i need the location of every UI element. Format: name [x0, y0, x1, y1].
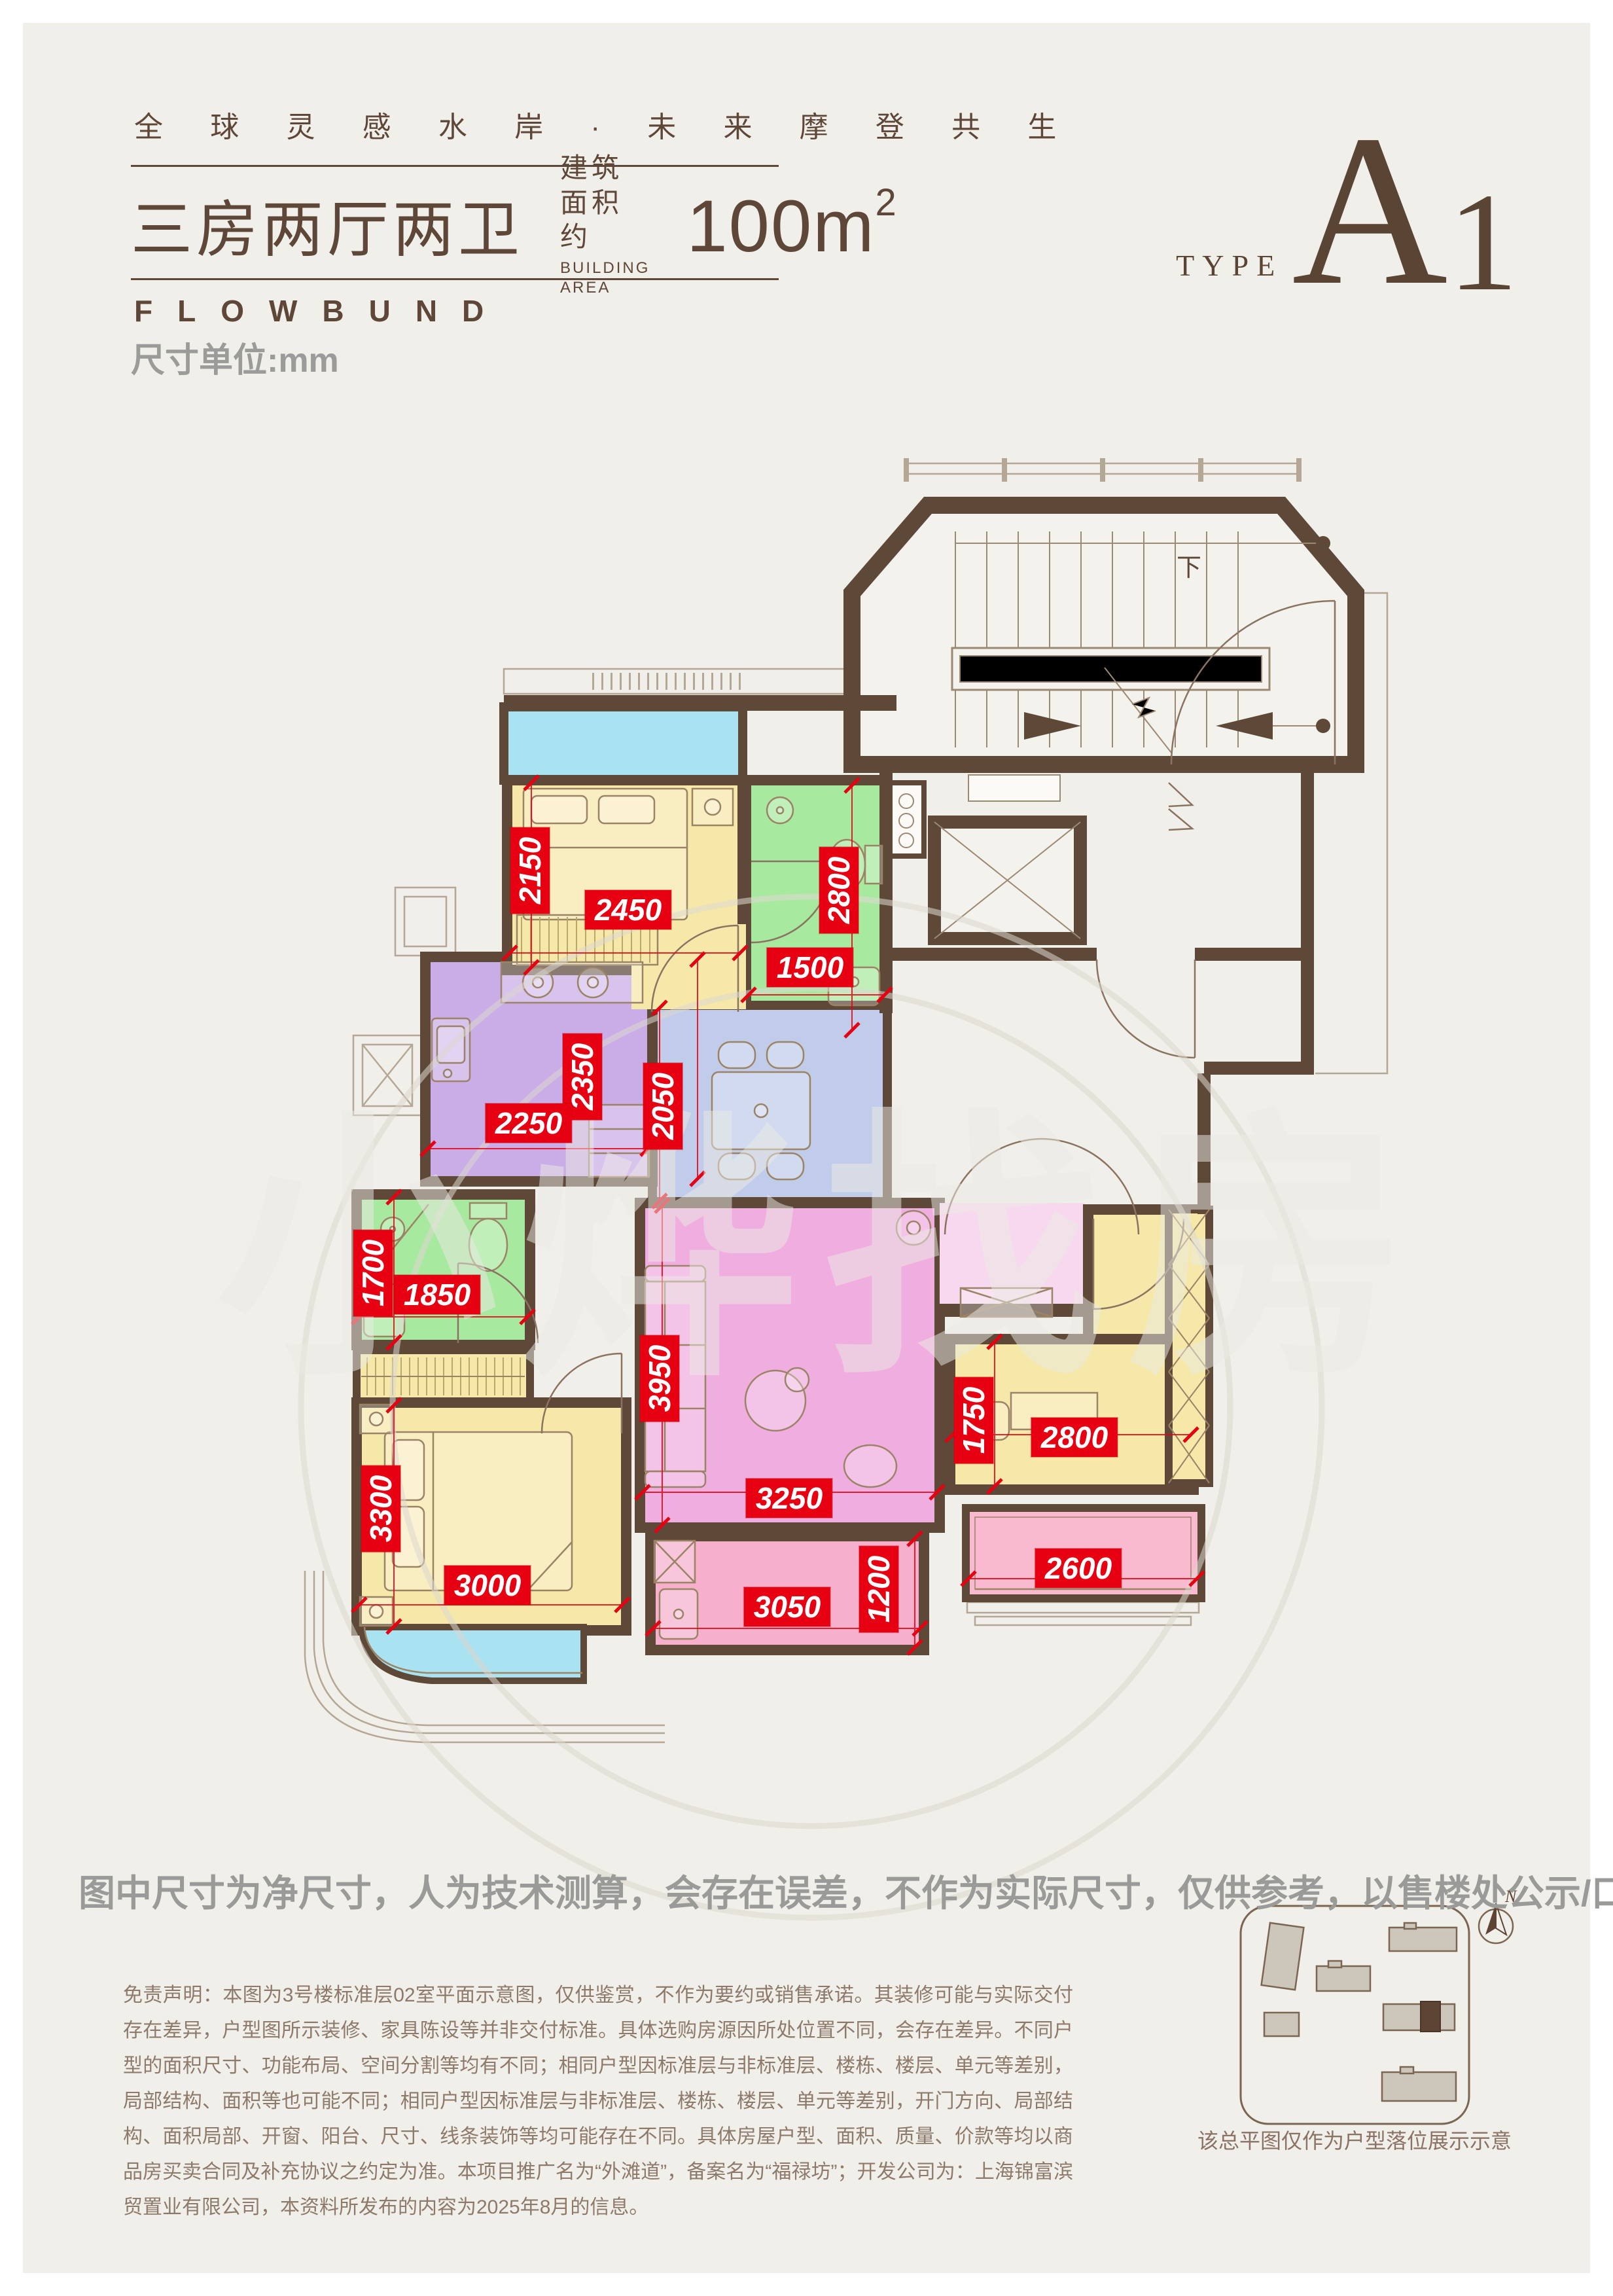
type-value-1: 1 [1448, 185, 1519, 300]
elevator [934, 775, 1080, 939]
dim-chip: 2450 [585, 890, 671, 929]
area-superscript: 2 [876, 181, 898, 224]
slogan: 全 球 灵 感 水 岸 · 未 来 摩 登 共 生 [134, 103, 1076, 145]
site-plan: N 该总平图仅作为户型落位展示示意 [1197, 1887, 1517, 2153]
dim-chip: 3950 [640, 1335, 679, 1422]
dim-chip: 3050 [744, 1587, 830, 1626]
dim-chip: 2150 [510, 827, 550, 914]
disclaimer-text: 免责声明：本图为3号楼标准层02室平面示意图，仅供鉴赏，不作为要约或销售承诺。其… [123, 1978, 1073, 2225]
dim-chip: 3300 [361, 1465, 400, 1552]
type-badge: TYPEA1 [1217, 84, 1518, 300]
divider-bottom [131, 278, 779, 280]
dim-chip: 1850 [394, 1275, 480, 1314]
layout-title: 三房两厅两卫 [131, 180, 523, 269]
dim-chip: 2600 [1035, 1549, 1122, 1588]
dimension-unit-note: 尺寸单位:mm [131, 332, 339, 382]
study-wardrobe [1169, 1210, 1209, 1483]
brand-name: FLOWBUND [134, 293, 508, 329]
divider-top [131, 165, 779, 167]
highlighted-building [1421, 2001, 1440, 2032]
siteplan-caption: 该总平图仅作为户型落位展示示意 [1197, 2129, 1512, 2153]
dim-chip: 2800 [1031, 1418, 1118, 1457]
dim-chip: 2250 [486, 1103, 572, 1143]
dim-chip: 2800 [819, 847, 859, 933]
dim-chip: 1750 [954, 1377, 993, 1463]
dim-chip: 3000 [444, 1566, 531, 1605]
area-label-block: 建筑面积约 BUILDING AREA [560, 151, 650, 298]
area-label-cn: 建筑面积约 [560, 151, 650, 255]
dim-chip: 3250 [746, 1479, 832, 1518]
stair-down-label: 下 [1177, 554, 1201, 582]
stairwell: 下 [852, 505, 1356, 764]
dim-chip: 1500 [767, 948, 853, 987]
measurement-note: 图中尺寸为净尺寸，人为技术测算，会存在误差，不作为实际尺寸，仅供参考，以售楼处公… [79, 1864, 1534, 1917]
room-balcony-north [504, 707, 743, 780]
dim-chip: 1200 [859, 1546, 898, 1632]
dim-chip: 2050 [643, 1063, 682, 1149]
dim-chip: 1700 [353, 1230, 393, 1316]
type-label: TYPE [1176, 248, 1283, 283]
floorplan-poster: 下 [0, 0, 1613, 2296]
header-row: 三房两厅两卫 建筑面积约 BUILDING AREA 100m2 [131, 175, 779, 274]
area-value: 100m2 [686, 181, 897, 268]
type-value-a: A [1292, 122, 1447, 300]
